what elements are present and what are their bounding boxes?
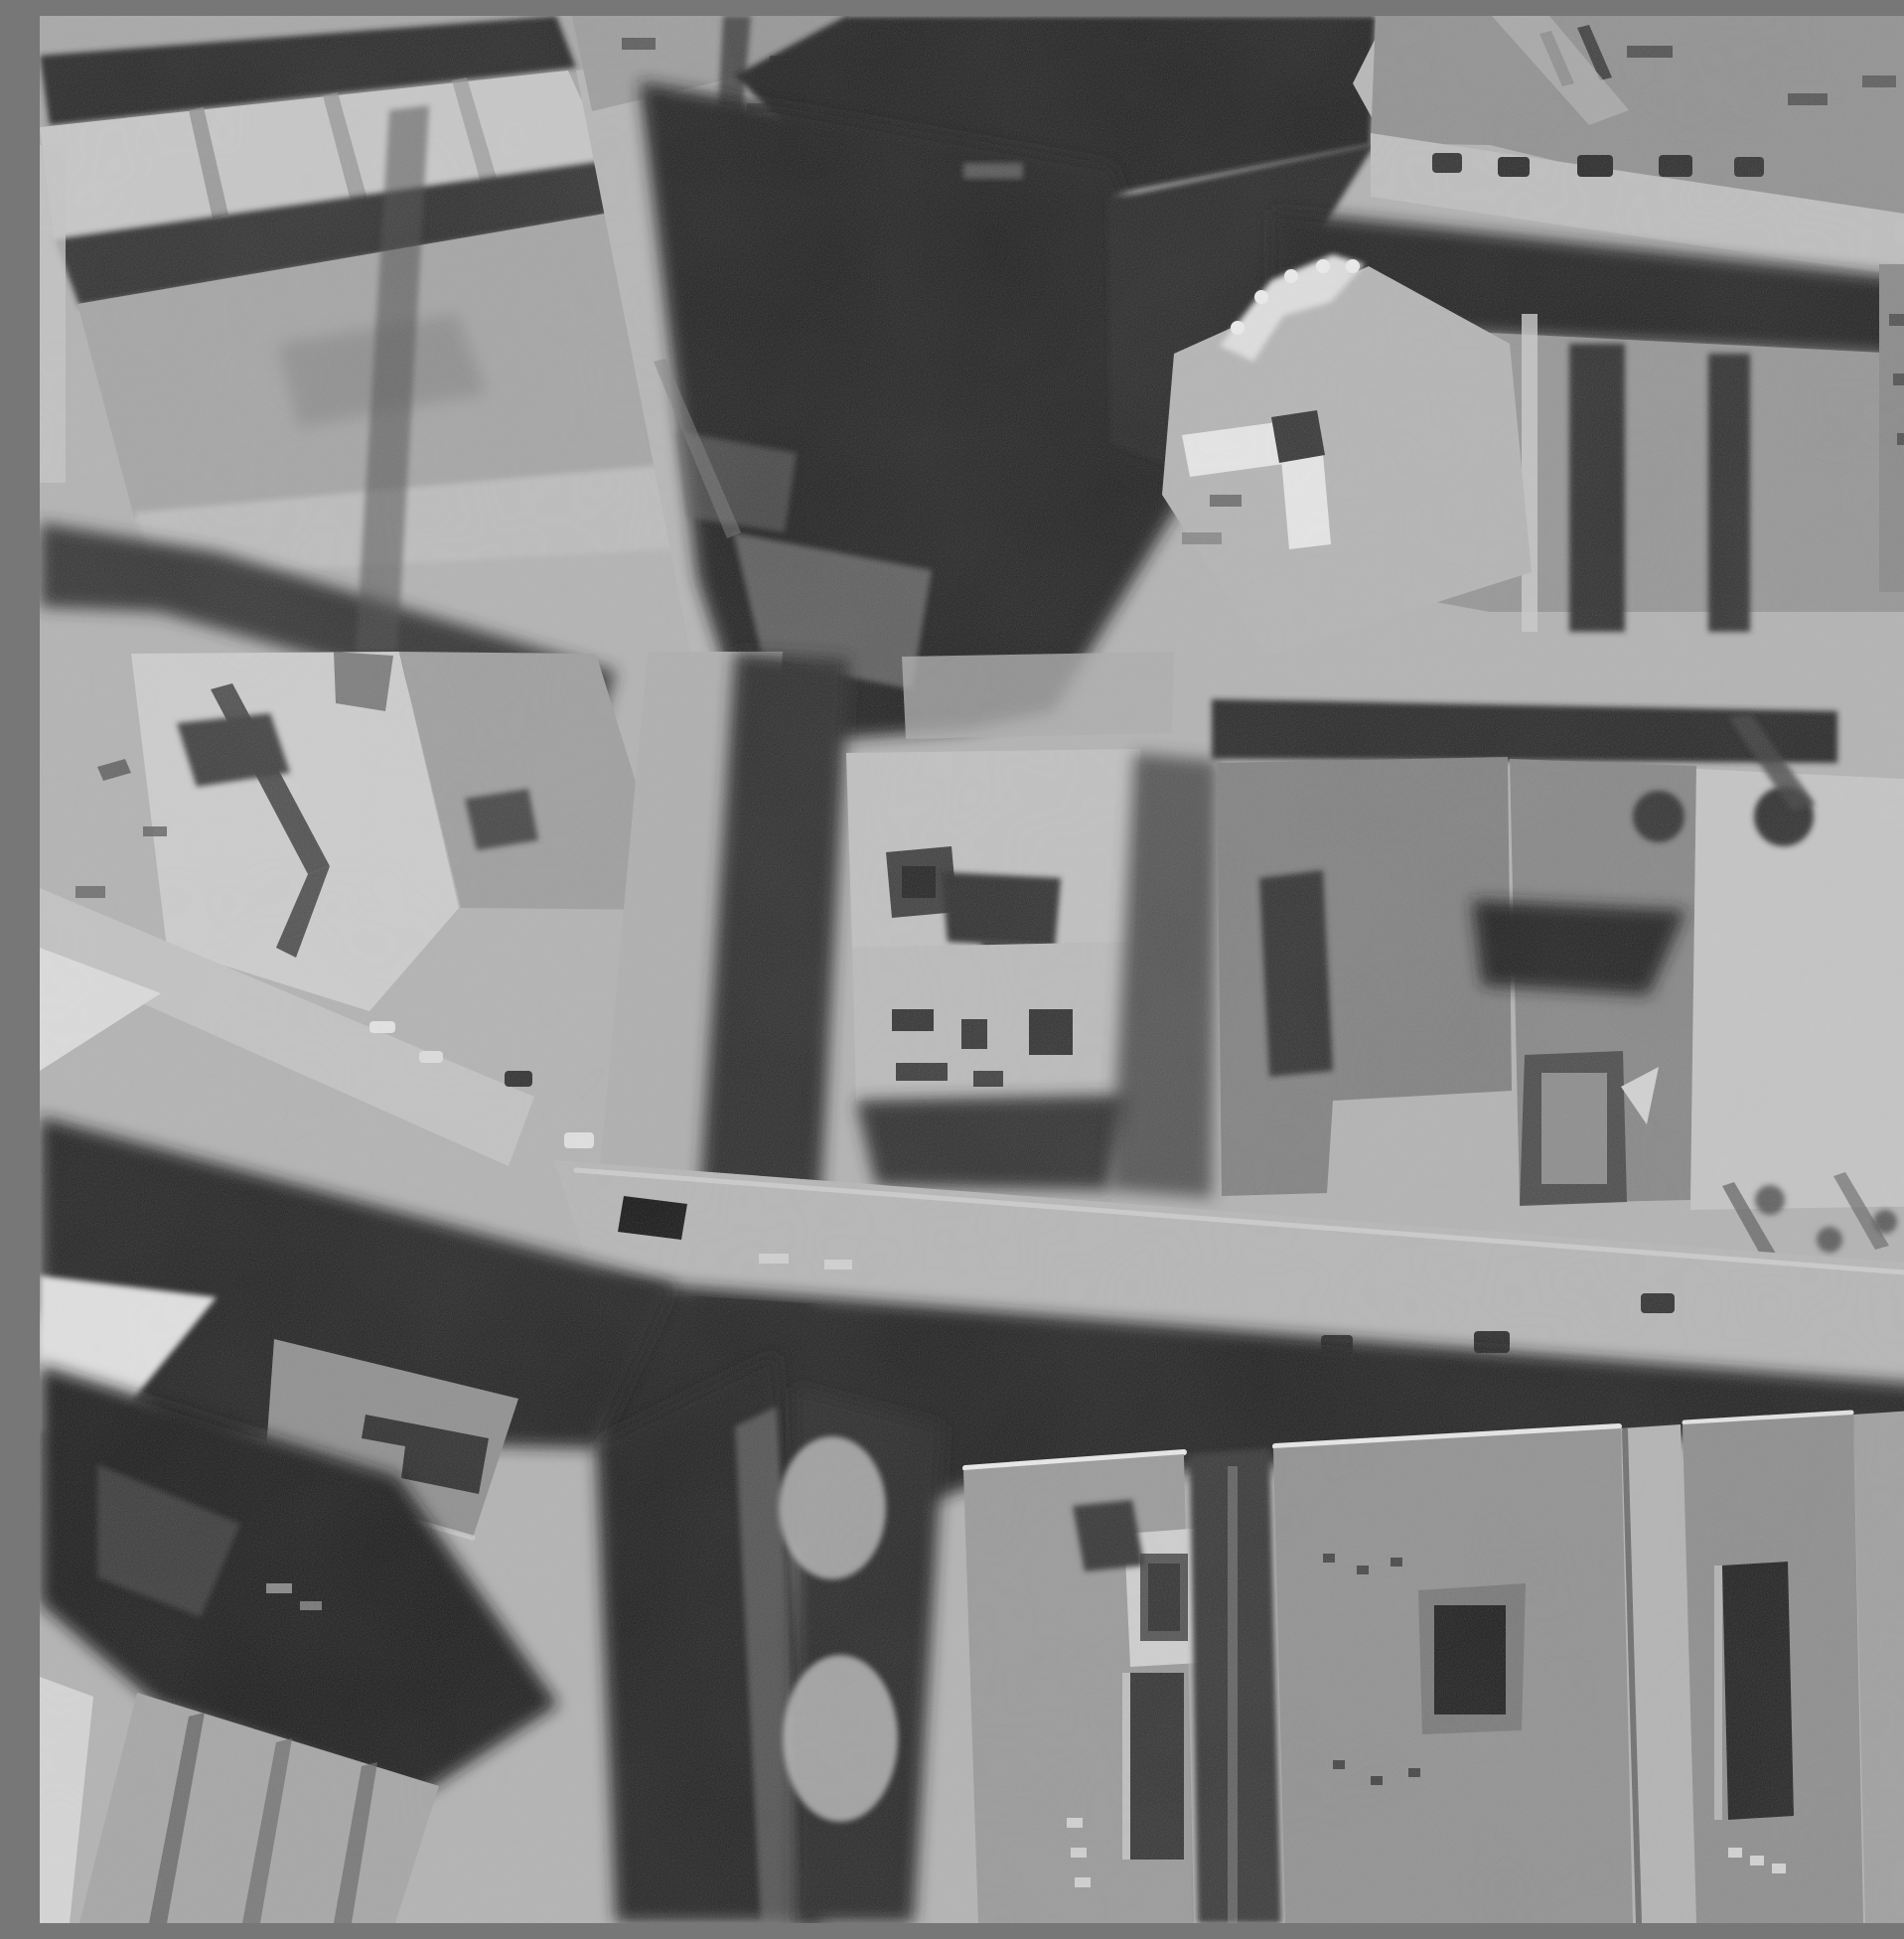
drawing-canvas bbox=[40, 16, 1904, 1923]
paper-grain-soft bbox=[40, 16, 1904, 1923]
aerial-city-drawing bbox=[40, 16, 1904, 1923]
shape-layer bbox=[40, 16, 1904, 1923]
